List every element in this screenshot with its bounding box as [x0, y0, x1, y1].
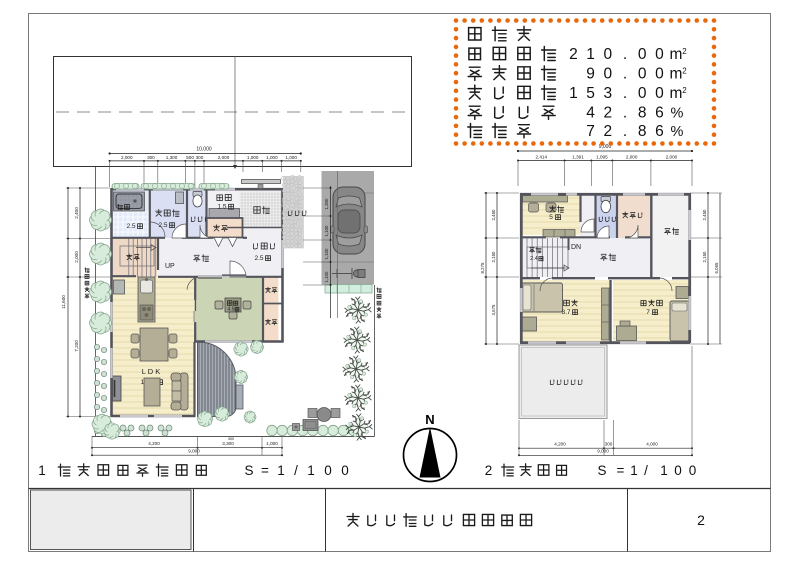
svg-text:2.4: 2.4 [530, 256, 538, 262]
svg-text:2: 2 [485, 463, 493, 478]
svg-text:0: 0 [689, 463, 697, 478]
svg-text:0: 0 [324, 463, 332, 478]
svg-text:0: 0 [638, 46, 647, 63]
svg-text:/: / [644, 463, 648, 478]
svg-text:S: S [244, 463, 253, 478]
svg-text:0: 0 [655, 85, 664, 102]
svg-text:11,600: 11,600 [61, 295, 66, 309]
svg-text:2: 2 [682, 47, 687, 56]
svg-text:7: 7 [586, 123, 595, 140]
svg-text:1,000: 1,000 [266, 441, 278, 446]
svg-text:1,300: 1,300 [324, 198, 329, 210]
svg-text:1,000: 1,000 [247, 155, 259, 160]
svg-text:5: 5 [549, 214, 553, 221]
svg-text:.: . [623, 123, 627, 140]
svg-text:4,000: 4,000 [646, 442, 658, 447]
svg-text:2.5: 2.5 [254, 255, 263, 262]
svg-text:2: 2 [697, 512, 705, 528]
svg-text:8: 8 [638, 105, 647, 122]
svg-text:2: 2 [682, 86, 687, 95]
svg-text:2,450: 2,450 [702, 209, 707, 221]
svg-text:9: 9 [586, 66, 595, 83]
svg-text:6,065: 6,065 [714, 262, 719, 274]
svg-text:2,000: 2,000 [74, 251, 79, 263]
svg-text:=: = [261, 463, 269, 478]
svg-text:2,000: 2,000 [666, 154, 678, 159]
svg-text:UP: UP [165, 263, 175, 270]
svg-text:0: 0 [603, 66, 612, 83]
svg-text:6: 6 [655, 105, 664, 122]
svg-text:4,200: 4,200 [148, 441, 160, 446]
svg-text:1,000: 1,000 [285, 155, 297, 160]
svg-text:=: = [617, 463, 625, 478]
svg-text:1,100: 1,100 [324, 248, 329, 260]
svg-text:3,675: 3,675 [491, 304, 496, 316]
svg-text:1,391: 1,391 [572, 154, 584, 159]
svg-text:8,275: 8,275 [480, 262, 485, 274]
svg-text:1,100: 1,100 [324, 271, 329, 283]
svg-text:2: 2 [569, 46, 578, 63]
svg-text:m: m [670, 46, 683, 63]
svg-text:8: 8 [638, 123, 647, 140]
svg-text:9,000: 9,000 [597, 449, 609, 454]
svg-text:2,000: 2,000 [218, 155, 230, 160]
svg-text:2,414: 2,414 [536, 154, 548, 159]
svg-text:N: N [425, 412, 434, 427]
svg-text:2,150: 2,150 [491, 251, 496, 263]
svg-text:2,000: 2,000 [626, 154, 638, 159]
svg-text:L D K: L D K [142, 367, 160, 376]
svg-text:%: % [671, 106, 684, 122]
svg-text:2: 2 [682, 67, 687, 76]
svg-text:m: m [670, 85, 683, 102]
svg-text:500: 500 [186, 155, 194, 160]
svg-text:4: 4 [586, 105, 595, 122]
svg-text:.: . [623, 46, 627, 63]
svg-text:1.5: 1.5 [217, 204, 226, 211]
svg-text:4.5: 4.5 [228, 307, 235, 313]
svg-text:1,000: 1,000 [266, 155, 278, 160]
svg-text:S: S [597, 463, 606, 478]
svg-text:DN: DN [571, 244, 581, 251]
svg-text:0: 0 [638, 66, 647, 83]
svg-text:1,300: 1,300 [166, 155, 178, 160]
svg-text:0: 0 [674, 463, 682, 478]
svg-text:/: / [294, 463, 298, 478]
svg-text:8.7: 8.7 [561, 309, 570, 316]
svg-text:1: 1 [660, 463, 668, 478]
svg-text:0: 0 [655, 66, 664, 83]
svg-text:1: 1 [586, 46, 595, 63]
svg-text:0: 0 [638, 85, 647, 102]
svg-text:0: 0 [341, 463, 349, 478]
svg-text:4,200: 4,200 [554, 442, 566, 447]
svg-text:5: 5 [586, 85, 595, 102]
svg-text:.: . [623, 105, 627, 122]
svg-text:300: 300 [605, 442, 613, 447]
svg-text:1: 1 [38, 463, 46, 478]
svg-text:m: m [670, 66, 683, 83]
svg-text:10,000: 10,000 [196, 147, 212, 153]
svg-text:.: . [623, 85, 627, 102]
svg-text:.: . [623, 66, 627, 83]
svg-text:1,095: 1,095 [596, 154, 608, 159]
svg-text:300: 300 [147, 155, 155, 160]
svg-text:300: 300 [196, 155, 204, 160]
svg-text:7: 7 [646, 309, 650, 316]
svg-text:2,450: 2,450 [491, 209, 496, 221]
svg-text:1: 1 [277, 463, 285, 478]
svg-text:1: 1 [569, 85, 578, 102]
svg-text:0: 0 [603, 46, 612, 63]
svg-text:2,150: 2,150 [702, 251, 707, 263]
svg-text:2: 2 [603, 123, 612, 140]
svg-text:2: 2 [603, 105, 612, 122]
svg-text:%: % [671, 124, 684, 140]
svg-text:2,400: 2,400 [74, 207, 79, 219]
svg-text:2,000: 2,000 [121, 155, 133, 160]
svg-text:7,200: 7,200 [74, 340, 79, 352]
svg-text:6: 6 [655, 123, 664, 140]
svg-text:3: 3 [603, 85, 612, 102]
svg-text:1: 1 [307, 463, 315, 478]
svg-text:0: 0 [655, 46, 664, 63]
svg-text:1,100: 1,100 [324, 225, 329, 237]
svg-text:2.5: 2.5 [126, 223, 135, 230]
svg-text:300: 300 [228, 437, 234, 441]
svg-text:1: 1 [630, 463, 638, 478]
svg-text:9,000: 9,000 [188, 449, 200, 454]
svg-text:3,300: 3,300 [222, 441, 234, 446]
